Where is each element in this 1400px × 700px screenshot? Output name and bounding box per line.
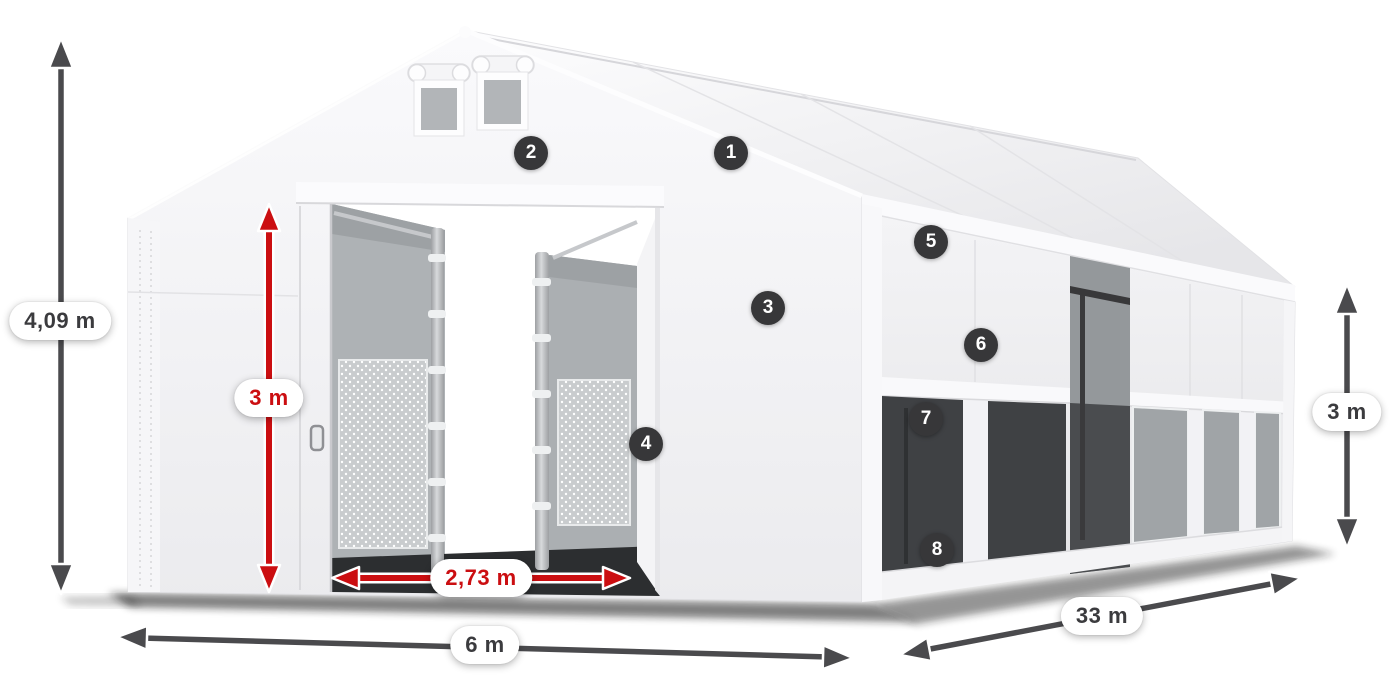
tent-illustration (0, 0, 1400, 700)
vent-right (472, 56, 534, 130)
tent-dimension-diagram: 4,09 m 3 m 2,73 m 6 m 33 m 3 m 12345678 (0, 0, 1400, 700)
entrance-opening (296, 182, 664, 596)
door-handle (311, 426, 323, 450)
vent-left (408, 64, 470, 136)
side-height-arrow (1335, 284, 1359, 548)
total-height-arrow (49, 38, 73, 594)
front-width-arrow (117, 625, 854, 670)
